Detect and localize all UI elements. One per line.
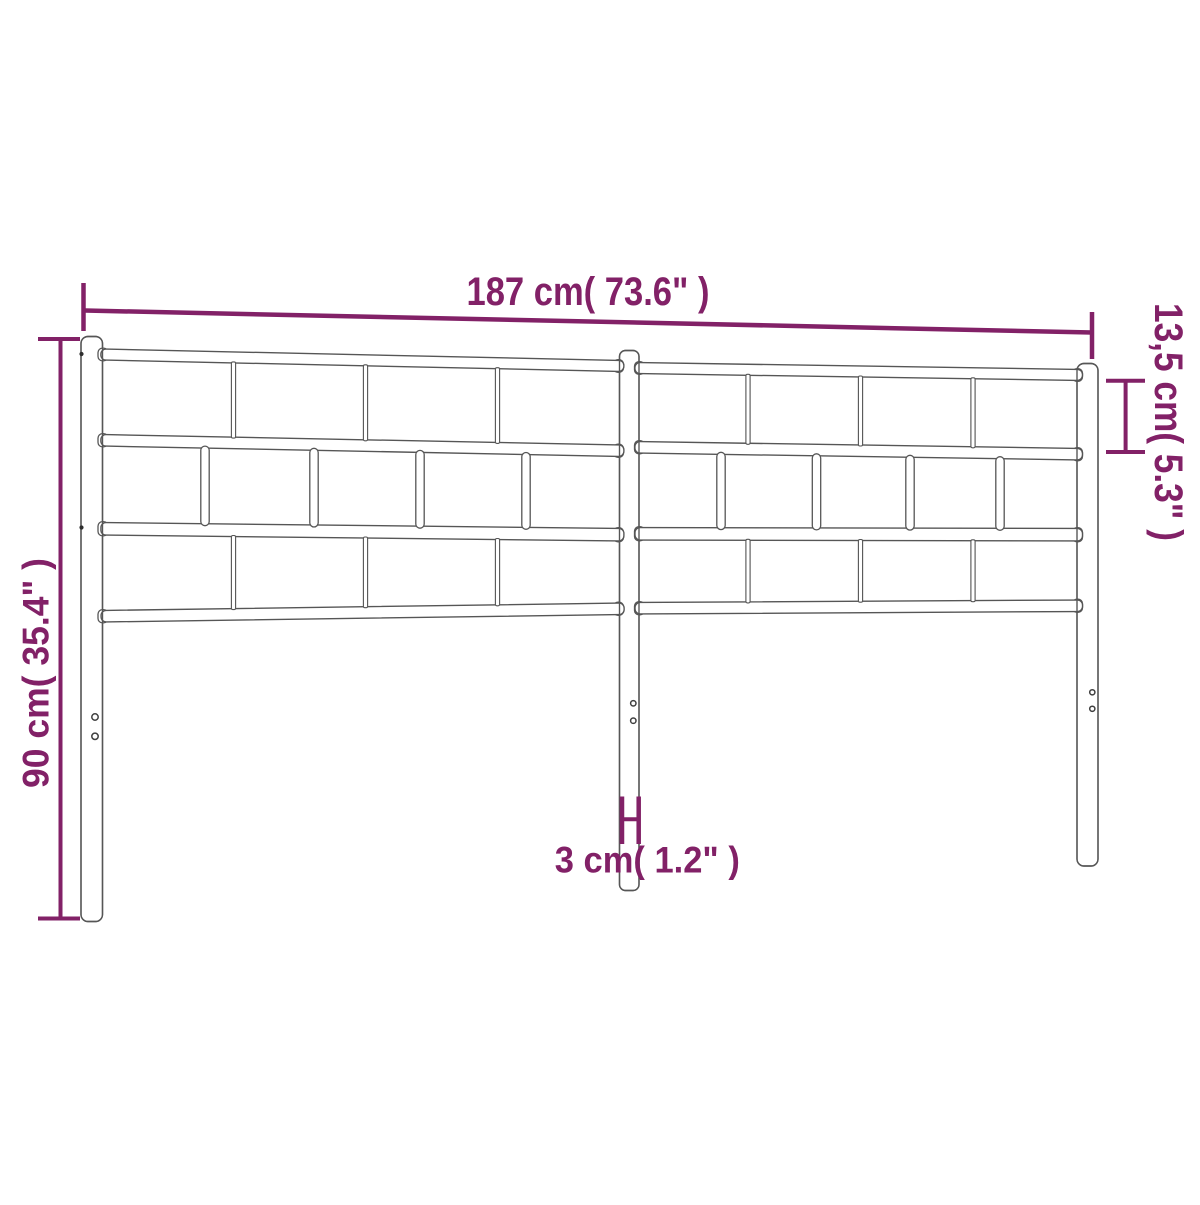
svg-text:187 cm( 73.6" ): 187 cm( 73.6" )	[467, 270, 710, 314]
svg-text:3 cm( 1.2" ): 3 cm( 1.2" )	[555, 840, 740, 881]
svg-text:90 cm( 35.4" ): 90 cm( 35.4" )	[15, 558, 57, 788]
svg-text:13,5 cm( 5.3" ): 13,5 cm( 5.3" )	[1146, 303, 1190, 541]
